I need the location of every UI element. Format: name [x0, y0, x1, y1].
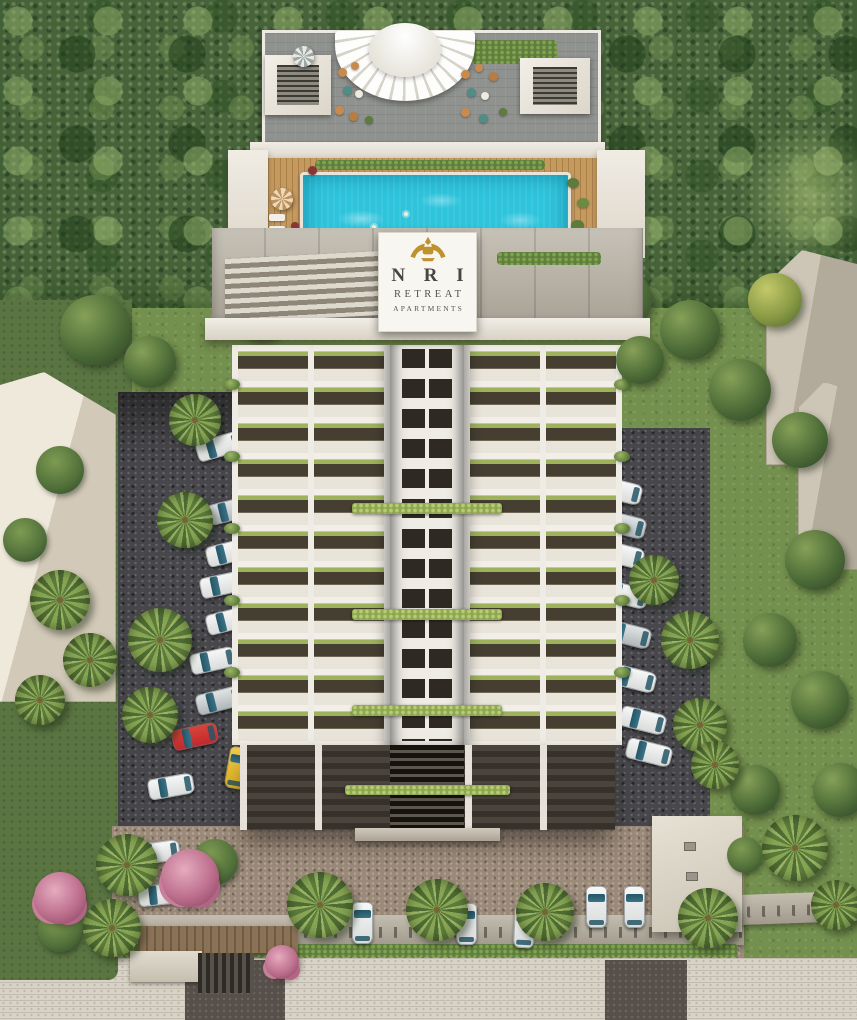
car: [586, 886, 607, 928]
rooftop-table: [355, 90, 363, 98]
pool-lounger: [269, 214, 285, 221]
tower-base: [240, 745, 615, 830]
balcony-plant: [614, 451, 630, 462]
flower-bush-pink: [34, 872, 86, 924]
core-planter-band: [352, 609, 502, 620]
stepped-louvres: [225, 251, 380, 323]
rooftop-table: [481, 92, 489, 100]
palm-tree: [128, 608, 192, 672]
rooftop-chair: [461, 70, 470, 79]
palm-tree: [811, 880, 857, 930]
balcony-plant: [224, 451, 240, 462]
bush: [36, 446, 84, 494]
flower-bush-pink: [265, 945, 299, 979]
tree: [709, 359, 771, 421]
potted-plant: [577, 198, 589, 208]
palm-tree: [63, 633, 117, 687]
palm-tree: [516, 883, 574, 941]
palm-tree: [122, 687, 178, 743]
palm-tree: [169, 394, 221, 446]
driveway-crossing-right: [605, 960, 687, 1020]
ac-unit: [684, 842, 696, 851]
rooftop-chair: [335, 106, 344, 115]
balcony-plant: [224, 667, 240, 678]
palm-tree: [661, 611, 719, 669]
core-planter-band: [352, 705, 502, 716]
lawn-clearing: [740, 120, 857, 270]
rooftop-seat: [467, 88, 476, 97]
tree: [616, 336, 664, 384]
tree: [813, 763, 857, 817]
facade-left-wing: [232, 345, 390, 745]
balcony-plant: [224, 595, 240, 606]
sign-line-1: N R I: [384, 265, 470, 287]
rooftop-seat: [479, 114, 488, 123]
rooftop-chair: [351, 62, 359, 70]
palm-tree: [96, 834, 158, 896]
umbrella: [293, 46, 314, 67]
palm-tree: [678, 888, 738, 948]
rooftop-chair: [349, 112, 358, 121]
car: [352, 902, 373, 944]
tree: [124, 336, 176, 388]
tree: [772, 412, 828, 468]
bush: [3, 518, 47, 562]
balcony-plant: [614, 595, 630, 606]
balcony-plant: [224, 523, 240, 534]
potted-plant: [365, 116, 373, 124]
potted-plant: [499, 108, 507, 116]
red-plant: [308, 166, 317, 175]
rooftop-pavilion-right: [520, 58, 590, 114]
ac-unit: [686, 872, 698, 881]
pool-hedge: [315, 160, 545, 170]
terrace-planter: [497, 252, 601, 265]
palm-tree: [762, 815, 828, 881]
tree-yellow: [748, 273, 802, 327]
rooftop-chair: [461, 108, 470, 117]
balcony-plant: [224, 379, 240, 390]
sign-line-2: RETREAT: [390, 287, 464, 303]
core-window-column: [402, 349, 452, 741]
rooftop-seat: [343, 86, 352, 95]
umbrella: [271, 188, 293, 210]
balcony-plant: [614, 667, 630, 678]
palm-tree: [691, 741, 739, 789]
architectural-render-scene: N R I RETREAT APARTMENTS: [0, 0, 857, 1020]
rooftop-chair: [489, 72, 498, 81]
swimmer: [404, 212, 408, 216]
palm-tree: [287, 872, 353, 938]
facade-core: [390, 345, 464, 745]
palm-tree: [406, 879, 468, 941]
entrance-gate: [198, 953, 254, 993]
potted-plant: [567, 178, 579, 188]
palm-tree: [30, 570, 90, 630]
tree: [60, 295, 130, 365]
entrance-canopy: [355, 828, 500, 841]
car: [624, 886, 645, 928]
base-planter-band: [345, 785, 510, 795]
sign-line-3: APARTMENTS: [391, 303, 464, 314]
balcony-plant: [614, 523, 630, 534]
tree: [791, 671, 849, 729]
gatehouse: [130, 951, 202, 982]
rooftop-chair: [338, 68, 347, 77]
tree: [785, 530, 845, 590]
core-planter-band: [352, 503, 502, 514]
tower-facade: [232, 345, 622, 745]
sidewalk: [0, 958, 857, 1020]
palm-tree: [83, 899, 141, 957]
signboard: N R I RETREAT APARTMENTS: [378, 232, 477, 332]
garuda-crest-icon: [405, 236, 451, 262]
bush: [727, 837, 763, 873]
palm-tree: [15, 675, 65, 725]
tree: [660, 300, 720, 360]
apartment-tower: N R I RETREAT APARTMENTS: [205, 28, 650, 863]
tree: [743, 613, 797, 667]
facade-right-wing: [464, 345, 622, 745]
rooftop-chair: [475, 64, 483, 72]
